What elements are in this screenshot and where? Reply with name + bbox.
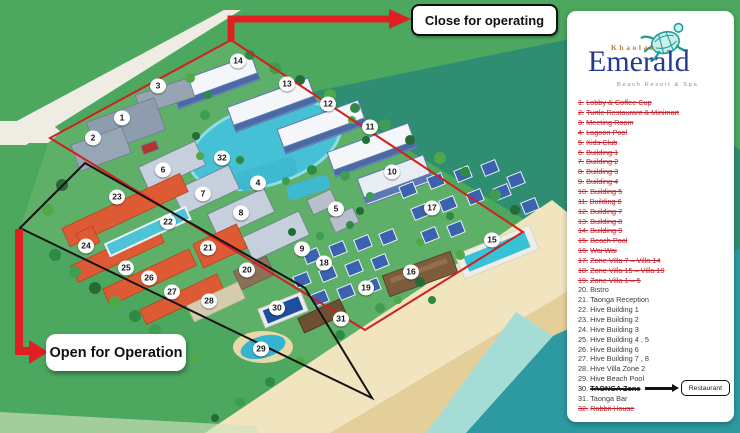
legend-item-17: 17.Zone Villa 7 – Villa 14 <box>578 256 730 266</box>
restaurant-box: Restaurant <box>681 380 730 396</box>
map-marker-32: 32 <box>214 151 230 166</box>
map-marker-13: 13 <box>279 77 295 92</box>
legend-item-18: 18.Zone Villa 15 – Villa 19 <box>578 265 730 275</box>
map-marker-29: 29 <box>253 342 269 357</box>
map-marker-9: 9 <box>294 242 310 257</box>
legend-item-8: 8.Building 3 <box>578 167 730 177</box>
map-marker-21: 21 <box>200 241 216 256</box>
legend-item-22: 22.Hive Building 1 <box>578 305 730 315</box>
replacement-arrow <box>645 387 672 389</box>
legend-item-3: 3.Meeting Room <box>578 118 730 128</box>
legend-item-4: 4.Lagoon Pool <box>578 128 730 138</box>
map-marker-16: 16 <box>403 265 419 280</box>
legend-item-16: 16.Wai Wai <box>578 246 730 256</box>
map-marker-23: 23 <box>109 190 125 205</box>
legend-item-7: 7.Building 2 <box>578 157 730 167</box>
map-marker-10: 10 <box>384 165 400 180</box>
map-marker-15: 15 <box>484 233 500 248</box>
map-marker-27: 27 <box>164 285 180 300</box>
legend-item-32: 32.Rabbit House <box>578 403 730 413</box>
legend-item-30: 30.TAONGA ZoneRestaurant <box>578 383 730 393</box>
legend-panel: Khaolak Emerald Beach Resort & Spa 1.Lob… <box>567 11 734 422</box>
close-callout-label: Close for operating <box>425 13 544 28</box>
legend-item-9: 9.Building 4 <box>578 177 730 187</box>
open-arrow <box>19 229 48 364</box>
legend-item-11: 11.Building 6 <box>578 196 730 206</box>
map-marker-5: 5 <box>328 202 344 217</box>
legend-item-23: 23.Hive Building 2 <box>578 315 730 325</box>
legend-item-25: 25.Hive Building 4 , 5 <box>578 334 730 344</box>
legend-item-5: 5.Kids Club <box>578 137 730 147</box>
map-marker-14: 14 <box>230 54 246 69</box>
map-marker-22: 22 <box>160 215 176 230</box>
legend-item-13: 13.Building 8 <box>578 216 730 226</box>
legend-item-2: 2.Turtle Restaurant & Minimart <box>578 108 730 118</box>
legend-item-26: 26.Hive Building 6 <box>578 344 730 354</box>
brand-tagline: Beach Resort & Spa <box>617 82 698 88</box>
map-marker-31: 31 <box>333 312 349 327</box>
map-marker-3: 3 <box>150 79 166 94</box>
legend-item-12: 12.Building 7 <box>578 206 730 216</box>
legend-item-1: 1.Lobby & Coffee Cup <box>578 98 730 108</box>
open-callout-label: Open for Operation <box>50 345 183 361</box>
map-marker-20: 20 <box>239 263 255 278</box>
legend-item-14: 14.Building 9 <box>578 226 730 236</box>
map-marker-19: 19 <box>358 281 374 296</box>
map-marker-28: 28 <box>201 294 217 309</box>
legend-item-19: 19.Zone Villa 1 – 5 <box>578 275 730 285</box>
map-marker-8: 8 <box>233 206 249 221</box>
map-marker-7: 7 <box>195 187 211 202</box>
legend-item-20: 20.Bistro <box>578 285 730 295</box>
map-marker-12: 12 <box>320 97 336 112</box>
map-marker-26: 26 <box>141 271 157 286</box>
map-marker-1: 1 <box>114 111 130 126</box>
legend-item-6: 6.Building 1 <box>578 147 730 157</box>
open-for-operation-callout: Open for Operation <box>46 334 186 371</box>
brand-emerald: Emerald <box>588 45 690 79</box>
legend-item-10: 10.Building 5 <box>578 187 730 197</box>
map-marker-18: 18 <box>316 256 332 271</box>
map-marker-25: 25 <box>118 261 134 276</box>
map-marker-2: 2 <box>85 131 101 146</box>
legend-list: 1.Lobby & Coffee Cup2.Turtle Restaurant … <box>578 98 730 413</box>
map-marker-24: 24 <box>78 239 94 254</box>
resort-map-page: 1234567891011121314151617181920212223242… <box>0 0 740 433</box>
resort-logo: Khaolak Emerald Beach Resort & Spa <box>567 11 734 97</box>
map-marker-11: 11 <box>362 120 378 135</box>
map-marker-30: 30 <box>269 301 285 316</box>
legend-item-28: 28.Hive Villa Zone 2 <box>578 364 730 374</box>
map-marker-6: 6 <box>155 163 171 178</box>
map-marker-17: 17 <box>424 201 440 216</box>
legend-item-24: 24.Hive Building 3 <box>578 324 730 334</box>
legend-item-21: 21.Taonga Reception <box>578 295 730 305</box>
close-arrow <box>231 9 411 42</box>
close-for-operating-callout: Close for operating <box>411 4 558 36</box>
map-marker-4: 4 <box>250 176 266 191</box>
legend-item-27: 27.Hive Building 7 , 8 <box>578 354 730 364</box>
legend-item-15: 15.Beach Pool <box>578 236 730 246</box>
